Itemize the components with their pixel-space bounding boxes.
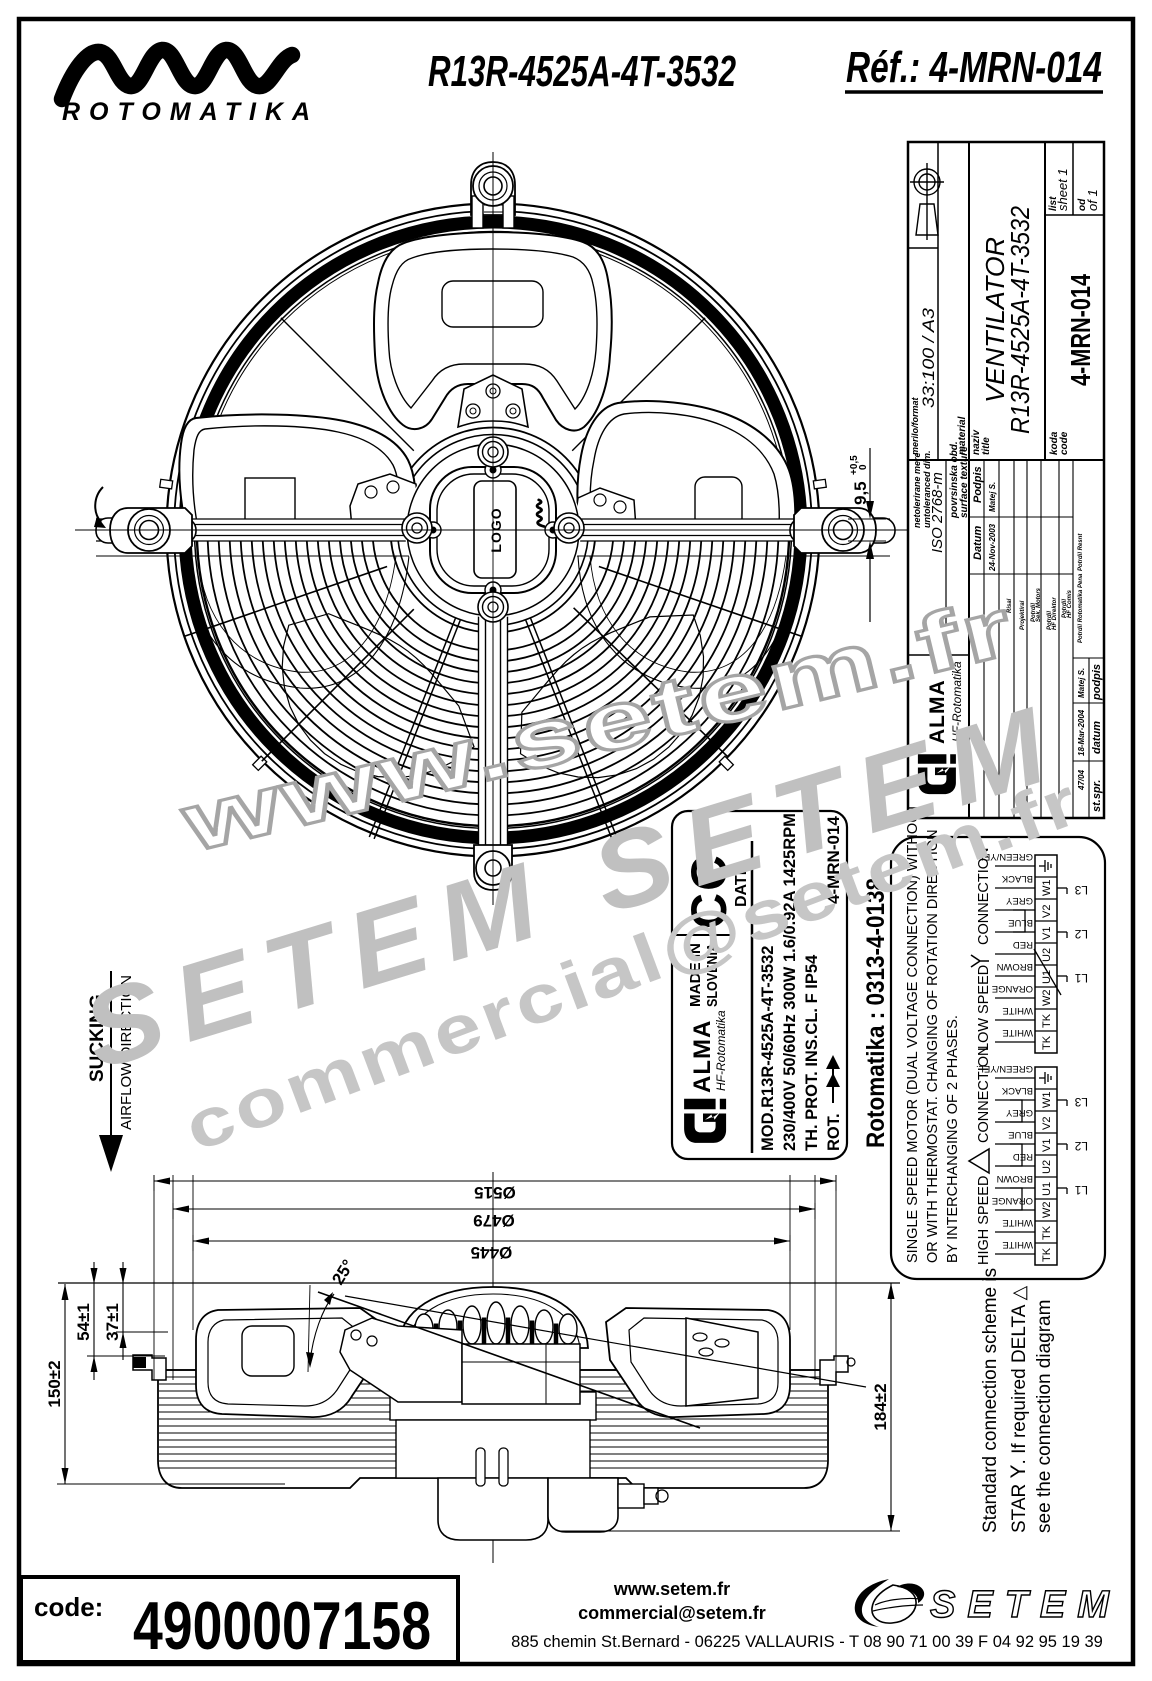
svg-text:TH. PROT. INS.CL. F IP54: TH. PROT. INS.CL. F IP54 (803, 954, 821, 1151)
svg-text:L1: L1 (1074, 971, 1088, 985)
svg-text:GREEN/YEL.: GREEN/YEL. (976, 1063, 1033, 1074)
svg-text:netolerirane mere: netolerirane mere (912, 452, 922, 528)
svg-text:54±1: 54±1 (74, 1303, 93, 1341)
svg-text:title: title (981, 437, 992, 455)
svg-text:surface texture: surface texture (959, 446, 970, 518)
svg-text:Datum: Datum (972, 526, 984, 560)
svg-text:885 chemin St.Bernard - 0622: 885 chemin St.Bernard - 06225 VALLAURIS … (511, 1633, 1103, 1651)
svg-text:4900007158: 4900007158 (133, 1588, 431, 1664)
svg-text:TK: TK (1041, 1035, 1053, 1050)
svg-text:WHITE: WHITE (1002, 1217, 1033, 1228)
svg-text:BLACK: BLACK (1001, 873, 1033, 884)
svg-text:V1: V1 (1041, 927, 1053, 940)
svg-text:W2: W2 (1041, 990, 1053, 1007)
svg-text:Ø479: Ø479 (473, 1211, 515, 1230)
svg-text:BLACK: BLACK (1001, 1085, 1033, 1096)
svg-text:R13R-4525A-4T-3532: R13R-4525A-4T-3532 (428, 47, 736, 96)
svg-text:W1: W1 (1041, 1092, 1053, 1109)
svg-text:Potrdil Resnt: Potrdil Resnt (1078, 533, 1084, 571)
svg-text:Sek. Motors: Sek. Motors (1036, 587, 1042, 622)
svg-text:Standard connection scheme is: Standard connection scheme is (980, 1268, 1001, 1533)
svg-text:Potrdil Rotomatika Pena: Potrdil Rotomatika Pena (1078, 573, 1084, 643)
svg-text:184±2: 184±2 (871, 1383, 890, 1430)
svg-text:TK: TK (1041, 1013, 1053, 1028)
svg-text:18-Mar-2004: 18-Mar-2004 (1077, 709, 1086, 756)
svg-text:HF Comis: HF Comis (1067, 589, 1073, 618)
svg-text:BROWN: BROWN (996, 1173, 1033, 1184)
svg-text:Réf.: 4-MRN-014: Réf.: 4-MRN-014 (846, 43, 1102, 92)
svg-text:L3: L3 (1074, 883, 1088, 897)
svg-text:BROWN: BROWN (996, 961, 1033, 972)
svg-text:TK: TK (1041, 1225, 1053, 1240)
svg-text:HF-Rotomatika: HF-Rotomatika (714, 1010, 728, 1091)
svg-text:V2: V2 (1041, 1117, 1053, 1130)
svg-text:L3: L3 (1074, 1095, 1088, 1109)
svg-text:of 1: of 1 (1085, 189, 1100, 211)
svg-text:CONNECTION: CONNECTION (976, 1046, 992, 1143)
svg-text:code:: code: (34, 1592, 103, 1622)
svg-text:SETEM: SETEM (930, 1584, 1121, 1626)
svg-text:sheet 1: sheet 1 (1055, 168, 1070, 211)
svg-text:W1: W1 (1041, 880, 1053, 897)
svg-text:47/04: 47/04 (1077, 769, 1086, 791)
svg-text:GREY: GREY (1005, 1107, 1033, 1118)
svg-text:BY INTERCHANGING OF 2 PHASES.: BY INTERCHANGING OF 2 PHASES. (945, 1015, 961, 1263)
svg-text:U1: U1 (1041, 1182, 1053, 1196)
svg-text:st.spr.: st.spr. (1091, 780, 1103, 812)
svg-text:HF Direktor: HF Direktor (1052, 597, 1058, 630)
svg-text:V1: V1 (1041, 1139, 1053, 1152)
svg-text:Matej S.: Matej S. (1077, 668, 1086, 698)
svg-text:code: code (1059, 431, 1070, 455)
svg-text:MOD.R13R-4525A-4T-3532: MOD.R13R-4525A-4T-3532 (759, 946, 777, 1151)
svg-text:STAR Y. If required DELTA △: STAR Y. If required DELTA △ (1007, 1285, 1030, 1533)
svg-text:BLUE: BLUE (1008, 917, 1033, 928)
svg-text:9,5: 9,5 (851, 481, 870, 505)
svg-text:L1: L1 (1074, 1183, 1088, 1197)
svg-text:Rotomatika : 0313-4-0138: Rotomatika : 0313-4-0138 (862, 878, 890, 1148)
svg-text:see the connection diagram: see the connection diagram (1034, 1300, 1055, 1533)
svg-text:0: 0 (858, 464, 869, 470)
svg-text:RED: RED (1013, 939, 1033, 950)
svg-text:WHITE: WHITE (1002, 1239, 1033, 1250)
svg-text:U2: U2 (1041, 948, 1053, 962)
svg-text:4-MRN-014: 4-MRN-014 (1065, 274, 1096, 386)
svg-text:LOW SPEED: LOW SPEED (976, 965, 992, 1051)
svg-text:RED: RED (1013, 1151, 1033, 1162)
svg-text:ROT.: ROT. (825, 1113, 843, 1151)
svg-text:podpis: podpis (1091, 664, 1103, 701)
svg-text:150±2: 150±2 (45, 1360, 64, 1407)
svg-text:ISO 2768-m: ISO 2768-m (929, 472, 946, 553)
svg-text:WHITE: WHITE (1002, 1005, 1033, 1016)
svg-text:V2: V2 (1041, 905, 1053, 918)
svg-text:Matej S.: Matej S. (988, 482, 997, 512)
svg-text:ROTOMATIKA: ROTOMATIKA (62, 98, 319, 126)
svg-text:www.setem.fr: www.setem.fr (613, 1579, 730, 1599)
svg-text:HIGH SPEED: HIGH SPEED (976, 1176, 992, 1265)
svg-text:W2: W2 (1041, 1202, 1053, 1219)
svg-text:GREY: GREY (1005, 895, 1033, 906)
svg-text:Projektiral: Projektiral (1020, 600, 1026, 630)
svg-text:24-Nov-2003: 24-Nov-2003 (988, 523, 997, 572)
svg-text:BLUE: BLUE (1008, 1129, 1033, 1140)
svg-text:Ø515: Ø515 (474, 1183, 516, 1202)
svg-text:ORANGE: ORANGE (992, 983, 1033, 994)
svg-text:material: material (957, 416, 968, 455)
svg-text:R13R-4525A-4T-3532: R13R-4525A-4T-3532 (1005, 206, 1035, 434)
svg-text:Podpis: Podpis (972, 466, 984, 503)
svg-text:ORANGE: ORANGE (992, 1195, 1033, 1206)
svg-text:33:100 / A3: 33:100 / A3 (919, 307, 938, 408)
svg-text:WHITE: WHITE (1002, 1027, 1033, 1038)
svg-text:Ø445: Ø445 (471, 1243, 513, 1262)
svg-text:TK: TK (1041, 1247, 1053, 1262)
svg-text:L2: L2 (1074, 927, 1088, 941)
svg-text:ALMA: ALMA (689, 1020, 716, 1093)
svg-text:commercial@setem.fr: commercial@setem.fr (578, 1603, 766, 1623)
svg-text:datum: datum (1091, 721, 1103, 754)
svg-text:U2: U2 (1041, 1160, 1053, 1174)
svg-text:L2: L2 (1074, 1139, 1088, 1153)
svg-text:37±1: 37±1 (103, 1303, 122, 1341)
